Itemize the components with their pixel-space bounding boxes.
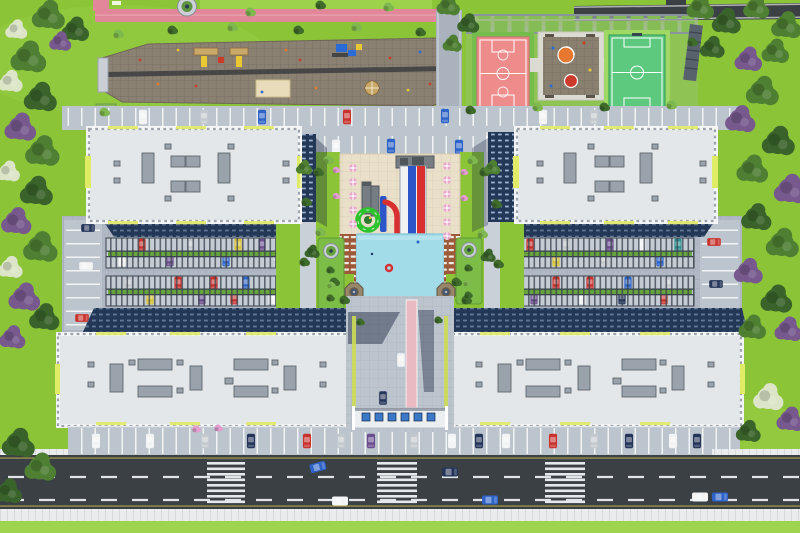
car bbox=[549, 434, 557, 448]
umbrella-icon bbox=[349, 178, 357, 186]
basketball-court bbox=[472, 32, 534, 114]
car bbox=[502, 434, 510, 448]
car bbox=[92, 434, 100, 448]
car bbox=[367, 434, 375, 448]
umbrella-icon bbox=[349, 206, 357, 214]
sandbox bbox=[256, 80, 290, 97]
car bbox=[81, 224, 95, 232]
car bbox=[379, 391, 387, 405]
west-wing-facade bbox=[486, 132, 516, 222]
bench bbox=[112, 1, 121, 5]
stairs bbox=[98, 58, 108, 92]
swimming-pool bbox=[356, 234, 444, 304]
track-fountain bbox=[178, 0, 197, 16]
umbrella-icon bbox=[443, 190, 451, 198]
car bbox=[712, 493, 728, 502]
pedestrian-path bbox=[406, 300, 417, 410]
car bbox=[441, 109, 449, 123]
car bbox=[139, 110, 147, 124]
car bbox=[387, 139, 395, 153]
umbrella-icon bbox=[443, 218, 451, 226]
umbrella-icon bbox=[443, 204, 451, 212]
building-lower-left bbox=[55, 332, 368, 428]
car bbox=[442, 468, 458, 477]
umbrella-icon bbox=[443, 232, 451, 240]
entrance-court bbox=[346, 296, 454, 432]
car bbox=[707, 238, 721, 246]
crosswalk bbox=[545, 459, 585, 506]
car bbox=[146, 434, 154, 448]
crosswalk bbox=[207, 459, 245, 506]
car bbox=[201, 434, 209, 448]
car bbox=[75, 314, 89, 322]
main-road bbox=[0, 449, 800, 533]
aerial-site-render bbox=[0, 0, 800, 533]
building-lower-right bbox=[428, 332, 745, 428]
east-facade bbox=[300, 134, 316, 222]
car bbox=[475, 434, 483, 448]
car bbox=[590, 110, 598, 124]
car bbox=[693, 434, 701, 448]
umbrella-icon bbox=[349, 220, 357, 228]
car bbox=[482, 496, 498, 505]
building-upper-left bbox=[85, 126, 327, 227]
umbrella-icon bbox=[349, 192, 357, 200]
playground-strip bbox=[98, 38, 452, 106]
sports-area bbox=[466, 14, 703, 116]
building-upper-right bbox=[472, 126, 718, 232]
crosswalk bbox=[377, 459, 417, 506]
soccer-field bbox=[604, 30, 670, 114]
car bbox=[303, 434, 311, 448]
car bbox=[539, 110, 547, 124]
car bbox=[343, 110, 351, 124]
car bbox=[79, 262, 93, 270]
umbrella-icon bbox=[443, 176, 451, 184]
kids-playground-court bbox=[530, 32, 611, 100]
car bbox=[247, 434, 255, 448]
car bbox=[258, 110, 266, 124]
umbrella-icon bbox=[349, 164, 357, 172]
car bbox=[669, 434, 677, 448]
car bbox=[448, 434, 456, 448]
car bbox=[397, 353, 405, 367]
car bbox=[709, 280, 723, 288]
car bbox=[200, 110, 208, 124]
entrance-gate bbox=[352, 406, 448, 430]
car bbox=[337, 434, 345, 448]
car bbox=[692, 493, 708, 502]
umbrella-icon bbox=[443, 162, 451, 170]
car bbox=[410, 434, 418, 448]
car bbox=[590, 434, 598, 448]
car bbox=[625, 434, 633, 448]
car bbox=[332, 497, 348, 506]
site-plan-svg bbox=[0, 0, 800, 533]
